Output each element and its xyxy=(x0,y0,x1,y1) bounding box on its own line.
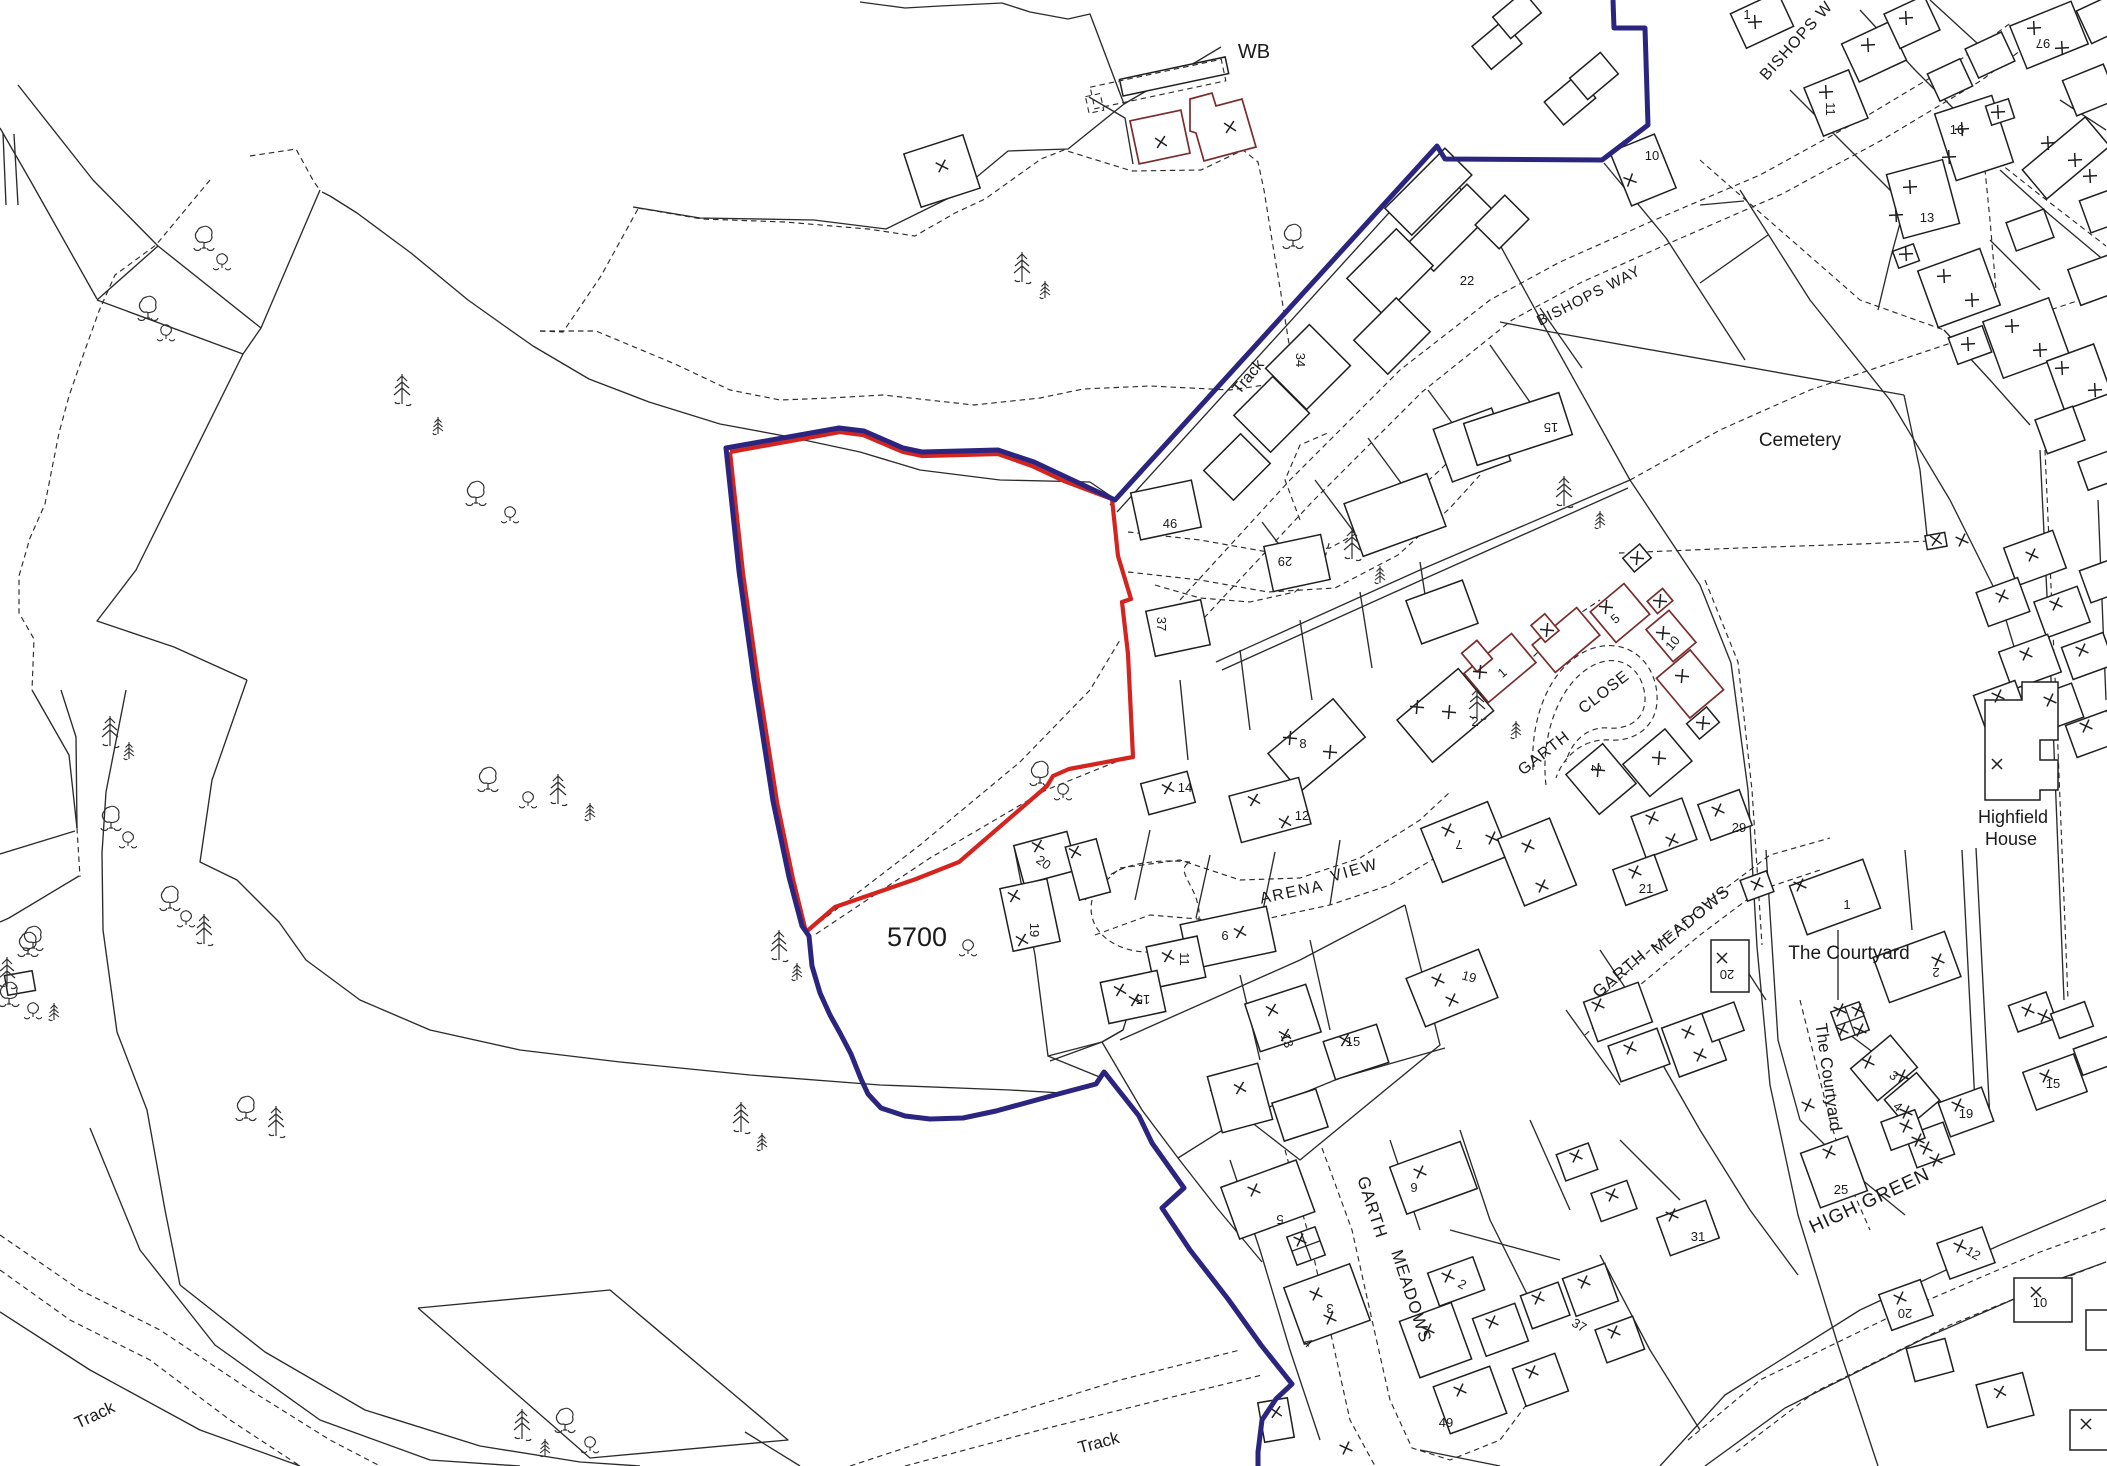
svg-text:37: 37 xyxy=(1154,617,1169,631)
svg-text:22: 22 xyxy=(1460,273,1474,288)
svg-text:2: 2 xyxy=(1589,764,1604,771)
svg-text:12: 12 xyxy=(1295,808,1309,823)
svg-text:20: 20 xyxy=(1720,967,1734,982)
svg-text:10: 10 xyxy=(1645,148,1659,163)
svg-text:5: 5 xyxy=(1276,1212,1283,1227)
svg-text:Highfield: Highfield xyxy=(1978,807,2048,827)
svg-text:The Courtyard: The Courtyard xyxy=(1788,943,1909,964)
svg-text:34: 34 xyxy=(1293,353,1308,367)
svg-text:Cemetery: Cemetery xyxy=(1759,430,1842,451)
svg-text:97: 97 xyxy=(2036,36,2050,51)
svg-text:21: 21 xyxy=(1639,881,1653,896)
svg-text:31: 31 xyxy=(1691,1229,1705,1244)
svg-text:15: 15 xyxy=(1544,420,1558,435)
svg-text:3: 3 xyxy=(1326,1301,1333,1316)
svg-text:7: 7 xyxy=(1455,837,1462,852)
svg-text:46: 46 xyxy=(1163,516,1177,531)
svg-text:11: 11 xyxy=(1823,102,1838,116)
svg-text:13: 13 xyxy=(1920,210,1934,225)
svg-text:House: House xyxy=(1985,829,2037,849)
svg-text:15: 15 xyxy=(1346,1034,1360,1049)
svg-text:15: 15 xyxy=(1136,992,1150,1007)
svg-text:49: 49 xyxy=(1439,1415,1453,1430)
svg-text:19: 19 xyxy=(1959,1106,1973,1121)
svg-text:16: 16 xyxy=(1950,122,1964,137)
svg-text:29: 29 xyxy=(1278,554,1292,569)
svg-text:8: 8 xyxy=(1299,736,1306,751)
svg-text:2: 2 xyxy=(1932,965,1939,980)
svg-text:2: 2 xyxy=(1471,714,1478,729)
svg-text:1: 1 xyxy=(1743,7,1750,22)
svg-text:1: 1 xyxy=(1843,897,1850,912)
svg-text:15: 15 xyxy=(2046,1076,2060,1091)
svg-text:20: 20 xyxy=(1898,1306,1912,1321)
svg-text:6: 6 xyxy=(1221,928,1228,943)
svg-text:29: 29 xyxy=(1732,820,1746,835)
svg-text:10: 10 xyxy=(2033,1295,2047,1310)
svg-text:14: 14 xyxy=(1178,780,1192,795)
svg-text:6: 6 xyxy=(1410,1180,1417,1195)
svg-text:5700: 5700 xyxy=(887,922,947,952)
svg-text:19: 19 xyxy=(1027,923,1042,937)
svg-text:11: 11 xyxy=(1177,952,1192,966)
svg-text:25: 25 xyxy=(1834,1182,1848,1197)
svg-text:WB: WB xyxy=(1238,41,1270,63)
